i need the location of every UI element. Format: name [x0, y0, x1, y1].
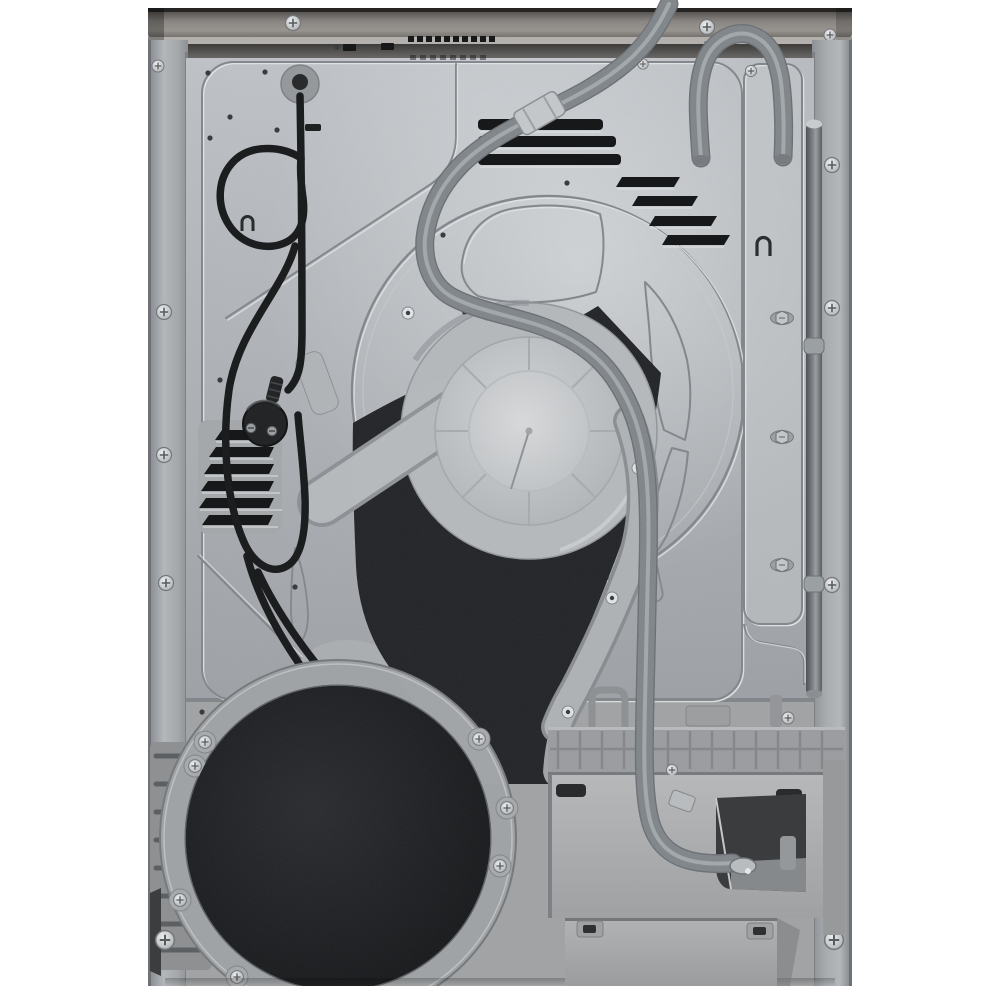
hex-bolt-icon: [771, 430, 794, 444]
service-flap: [565, 918, 800, 986]
clamp-bolt: [745, 868, 751, 874]
vertical-rail: [804, 120, 824, 699]
rivet-icon: [606, 592, 618, 604]
rail-cap: [806, 690, 822, 699]
worktop-top-edge: [148, 8, 852, 12]
hex-bolt-icon: [771, 558, 794, 572]
rail-joint: [804, 338, 824, 354]
rail-joint: [804, 576, 824, 592]
module-slot: [556, 784, 586, 797]
rivet-icon: [562, 706, 574, 718]
screw-icon: [286, 16, 301, 31]
bottom-margin: [0, 986, 1000, 1000]
module-side: [823, 760, 845, 935]
flap-tab-slot: [753, 927, 766, 935]
screw-icon: [824, 29, 836, 41]
screw-icon: [700, 20, 715, 35]
rail-cap: [806, 120, 822, 129]
flange-right-edge: [849, 40, 852, 986]
hex-bolt-icon: [771, 311, 794, 325]
recess-part: [780, 836, 796, 870]
rail-bar: [806, 122, 822, 696]
module-post: [686, 706, 730, 726]
cord-clip: [305, 124, 321, 131]
screw-icon: [745, 65, 756, 76]
drain-connection: [730, 858, 756, 874]
flap-tab-slot: [583, 925, 596, 933]
module-post: [770, 695, 782, 727]
hose-clamp: [730, 858, 756, 874]
hose-end: [774, 154, 792, 164]
rivet-icon: [402, 307, 414, 319]
photo-canvas: [0, 0, 1000, 1000]
dryer-rear-photo: [0, 0, 1000, 1000]
worktop-seam-shadow: [148, 44, 852, 58]
hose-end: [692, 155, 710, 165]
